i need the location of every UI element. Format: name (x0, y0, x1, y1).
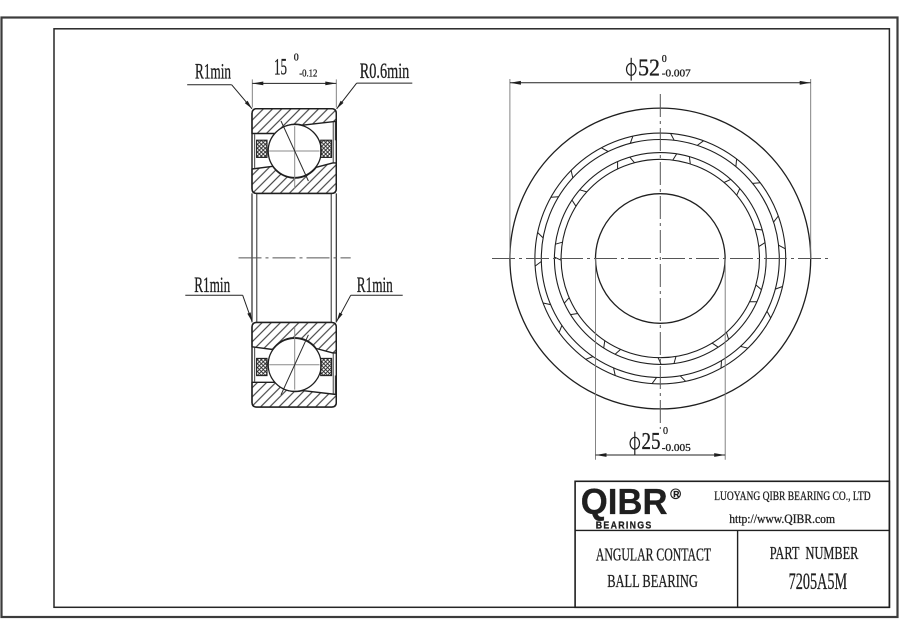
svg-text:R1min: R1min (194, 272, 230, 297)
svg-text:R1min: R1min (357, 272, 393, 297)
svg-text:R1min: R1min (195, 58, 231, 83)
svg-text:http://www.QIBR.com: http://www.QIBR.com (729, 511, 835, 526)
svg-text:BEARINGS: BEARINGS (596, 519, 653, 531)
svg-text:52: 52 (638, 55, 660, 81)
svg-text:25: 25 (642, 429, 661, 455)
svg-text:0: 0 (662, 54, 667, 65)
svg-text:ANGULAR CONTACT: ANGULAR CONTACT (596, 545, 711, 565)
svg-text:-0.007: -0.007 (662, 69, 691, 80)
svg-text:R0.6min: R0.6min (360, 58, 410, 83)
svg-text:R: R (673, 489, 679, 499)
svg-text:QIBR: QIBR (581, 481, 668, 522)
svg-text:7205A5M: 7205A5M (789, 569, 848, 594)
svg-text:0: 0 (294, 53, 299, 64)
svg-text:LUOYANG QIBR BEARING CO., LTD: LUOYANG QIBR BEARING CO., LTD (714, 488, 870, 503)
svg-text:15: 15 (274, 54, 287, 79)
svg-text:BALL BEARING: BALL BEARING (607, 571, 698, 591)
svg-text:-0.12: -0.12 (299, 68, 317, 79)
svg-text:PART NUMBER: PART NUMBER (770, 543, 859, 563)
svg-text:0: 0 (663, 426, 668, 437)
svg-text:-0.005: -0.005 (662, 443, 691, 454)
